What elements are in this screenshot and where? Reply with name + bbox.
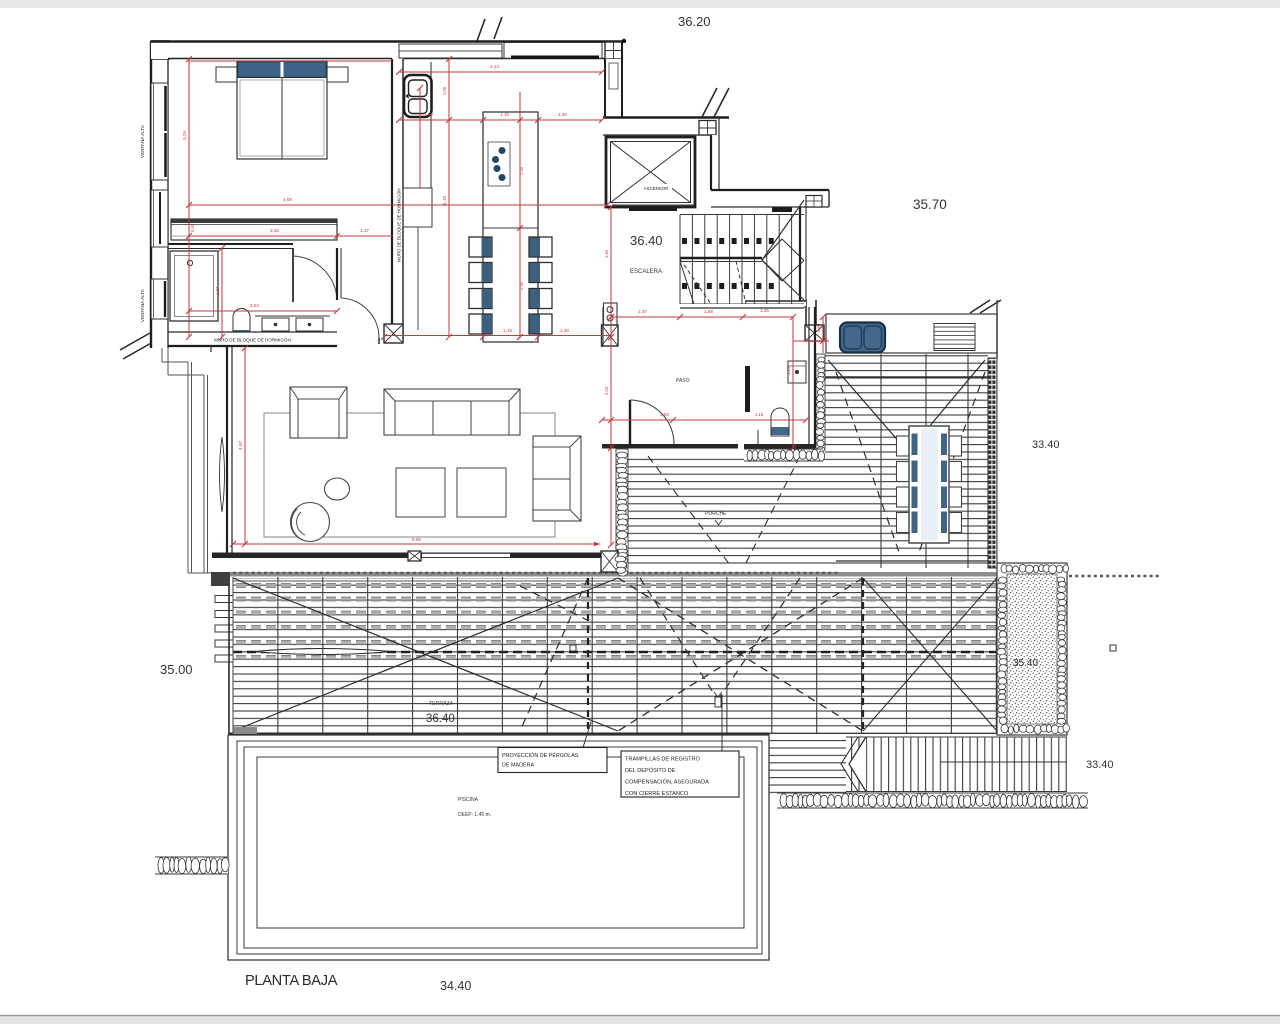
- svg-text:PORCHE: PORCHE: [705, 511, 727, 517]
- svg-text:35.40: 35.40: [1013, 658, 1038, 669]
- svg-text:ESCALERA: ESCALERA: [630, 269, 662, 275]
- svg-text:CON CIERRE ESTANCO: CON CIERRE ESTANCO: [625, 791, 689, 797]
- svg-text:1,37: 1,37: [638, 309, 647, 314]
- svg-text:1,15: 1,15: [755, 412, 764, 417]
- svg-text:1,25: 1,25: [760, 308, 769, 313]
- svg-text:MURO DE BLOQUE DE HORMIGÓN: MURO DE BLOQUE DE HORMIGÓN: [397, 189, 402, 262]
- svg-text:PLANTA BAJA: PLANTA BAJA: [245, 973, 338, 989]
- svg-text:2,83: 2,83: [660, 412, 669, 417]
- svg-text:36.20: 36.20: [678, 14, 711, 29]
- svg-text:5,18: 5,18: [442, 196, 447, 205]
- svg-text:TRAMPILLAS DE REGISTRO: TRAMPILLAS DE REGISTRO: [625, 757, 701, 763]
- svg-text:DEL DEPÓSITO DE: DEL DEPÓSITO DE: [625, 767, 676, 774]
- svg-text:DE MADERA: DE MADERA: [502, 763, 534, 769]
- svg-text:4,09: 4,09: [283, 197, 292, 202]
- svg-text:1,10: 1,10: [424, 112, 433, 117]
- svg-text:35.00: 35.00: [160, 662, 193, 677]
- svg-text:MURO DE BLOQUE DE HORMIGÓN: MURO DE BLOQUE DE HORMIGÓN: [214, 337, 291, 343]
- svg-text:35.70: 35.70: [913, 197, 947, 212]
- svg-text:3,53: 3,53: [250, 303, 259, 308]
- svg-text:DEEP: 1.45 m.: DEEP: 1.45 m.: [458, 812, 491, 818]
- svg-text:36.40: 36.40: [630, 233, 663, 248]
- svg-text:0,60: 0,60: [190, 223, 195, 232]
- svg-text:2,40: 2,40: [519, 166, 524, 175]
- svg-text:1,88: 1,88: [704, 309, 713, 314]
- svg-text:PASO: PASO: [676, 378, 690, 384]
- svg-text:33.40: 33.40: [1086, 759, 1114, 771]
- svg-text:34.40: 34.40: [440, 979, 471, 993]
- svg-text:3,32: 3,32: [270, 228, 279, 233]
- svg-text:0,90: 0,90: [816, 323, 821, 332]
- svg-text:1,84: 1,84: [604, 249, 609, 258]
- svg-text:COMPENSACIÓN, ASEGURADA: COMPENSACIÓN, ASEGURADA: [625, 779, 709, 786]
- svg-text:33.40: 33.40: [1032, 439, 1060, 451]
- svg-text:TERRAZA: TERRAZA: [429, 701, 454, 707]
- svg-text:4,97: 4,97: [238, 441, 243, 450]
- svg-text:VENTANA ALTA: VENTANA ALTA: [140, 124, 145, 158]
- svg-text:VENTANA ALTA: VENTANA ALTA: [140, 288, 145, 322]
- svg-text:1,17: 1,17: [360, 228, 369, 233]
- svg-text:2,40: 2,40: [519, 281, 524, 290]
- svg-text:1,00: 1,00: [442, 86, 447, 95]
- svg-text:1,87: 1,87: [215, 286, 220, 295]
- svg-text:1,30: 1,30: [558, 112, 567, 117]
- svg-text:1,15: 1,15: [786, 366, 791, 375]
- svg-text:2,03: 2,03: [604, 386, 609, 395]
- svg-text:PROYECCIÓN DE PÉRGOLAS: PROYECCIÓN DE PÉRGOLAS: [502, 752, 579, 759]
- svg-text:1,30: 1,30: [560, 328, 569, 333]
- svg-text:1,10: 1,10: [500, 112, 509, 117]
- svg-text:PISCINA: PISCINA: [458, 797, 479, 803]
- svg-text:36.40: 36.40: [426, 713, 455, 725]
- svg-text:ASCENSOR: ASCENSOR: [644, 186, 669, 191]
- svg-text:1,15: 1,15: [503, 328, 512, 333]
- svg-text:4,13: 4,13: [490, 64, 499, 69]
- svg-text:8,05: 8,05: [412, 537, 421, 542]
- svg-text:3,29: 3,29: [182, 131, 187, 140]
